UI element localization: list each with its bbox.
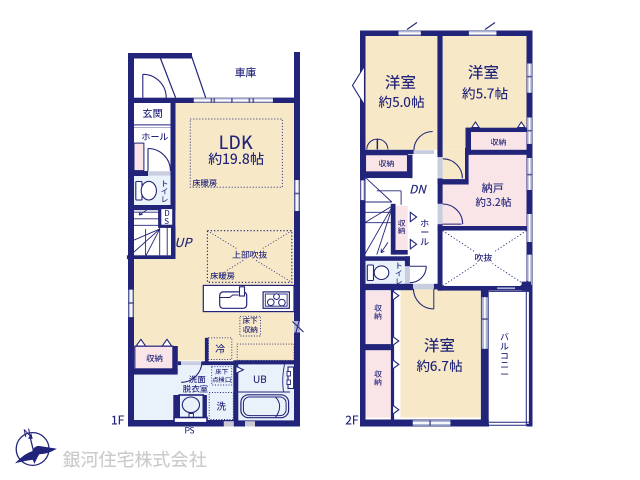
svg-text:床暖房: 床暖房 (210, 270, 235, 282)
svg-text:洋室: 洋室 (424, 334, 455, 356)
svg-text:上部吹抜: 上部吹抜 (232, 248, 267, 261)
svg-text:2F: 2F (345, 411, 359, 429)
svg-text:収納: 収納 (379, 159, 395, 170)
svg-text:PS: PS (184, 425, 194, 437)
svg-text:納: 納 (373, 311, 382, 322)
svg-text:収納: 収納 (146, 353, 163, 365)
svg-text:約6.7帖: 約6.7帖 (417, 355, 463, 375)
svg-text:銀河住宅株式会社: 銀河住宅株式会社 (63, 446, 207, 472)
svg-text:玄関: 玄関 (143, 105, 163, 120)
svg-text:DN: DN (409, 181, 427, 198)
svg-text:冷: 冷 (215, 340, 225, 355)
svg-text:約19.8帖: 約19.8帖 (208, 149, 264, 169)
svg-text:納: 納 (398, 226, 406, 237)
svg-text:床暖房: 床暖房 (192, 177, 217, 189)
svg-text:約3.2帖: 約3.2帖 (475, 195, 511, 210)
svg-text:脱衣室: 脱衣室 (183, 383, 209, 395)
svg-text:ホール: ホール (141, 130, 168, 143)
svg-text:S: S (164, 216, 169, 227)
svg-text:1F: 1F (111, 411, 125, 429)
svg-text:収納: 収納 (491, 137, 507, 148)
svg-text:レ: レ (161, 194, 169, 205)
svg-text:吹抜: 吹抜 (474, 251, 492, 264)
svg-text:洋室: 洋室 (385, 71, 416, 93)
svg-text:ー: ー (500, 368, 509, 381)
svg-text:洋室: 洋室 (468, 61, 499, 83)
svg-text:収納: 収納 (243, 325, 259, 336)
svg-text:車庫: 車庫 (235, 65, 257, 81)
svg-text:UB: UB (253, 371, 267, 386)
svg-text:点検口: 点検口 (212, 375, 231, 384)
svg-text:約5.0帖: 約5.0帖 (379, 91, 425, 111)
svg-text:約5.7帖: 約5.7帖 (462, 83, 508, 103)
svg-text:納: 納 (373, 377, 382, 388)
svg-text:ル: ル (420, 235, 429, 248)
svg-text:洗: 洗 (215, 399, 226, 413)
svg-text:納戸: 納戸 (482, 180, 504, 196)
svg-text:UP: UP (174, 232, 193, 251)
